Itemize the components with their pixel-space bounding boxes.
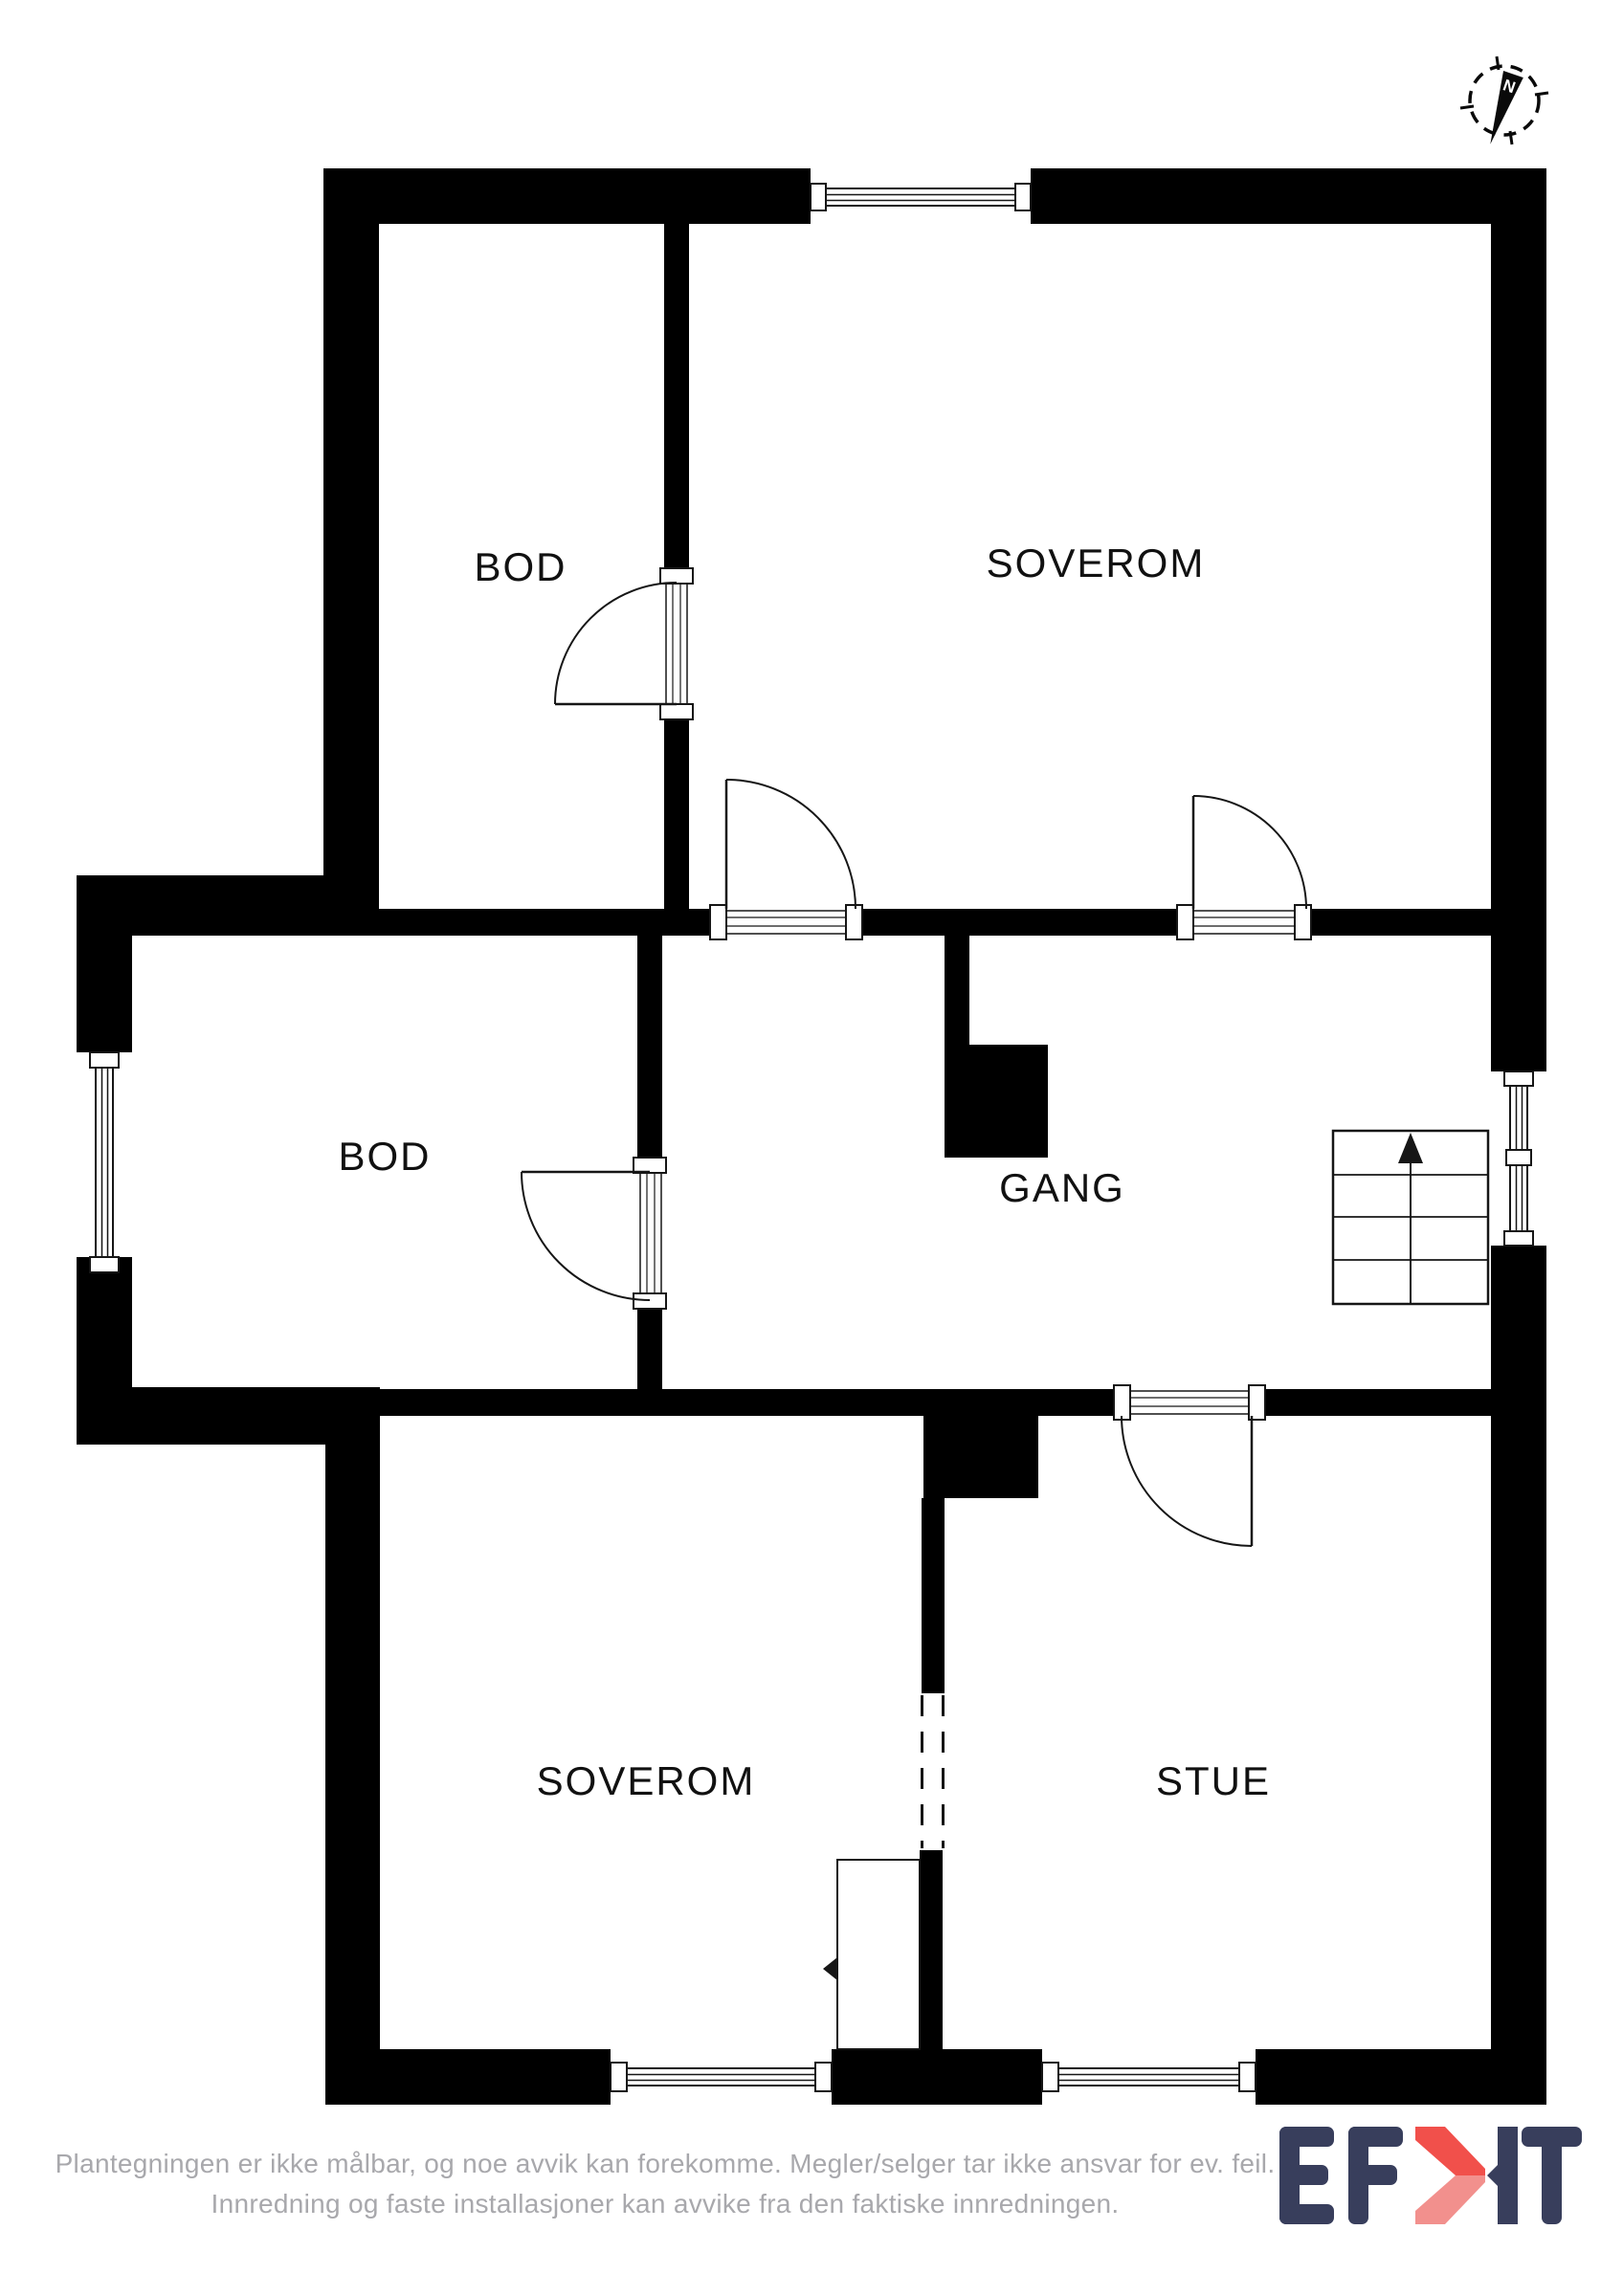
wall-left-upper (323, 168, 379, 936)
door-bod2-arc (522, 1172, 650, 1300)
logo-letter-k-bar (1487, 2127, 1518, 2224)
logo-letter-f (1348, 2165, 1397, 2185)
floorplan-svg: NBODSOVEROMBODGANGSOVEROMSTUE (0, 0, 1623, 2296)
door-bod1-arc (555, 583, 677, 704)
window-bottom2-cap-left (1042, 2063, 1058, 2091)
door-bod2-threshold (640, 1172, 661, 1294)
door-soverom1-left-arc (726, 780, 856, 909)
wall-gang-top-2 (862, 909, 1177, 936)
disclaimer-line-1: Plantegningen er ikke målbar, og noe avv… (0, 2149, 1330, 2179)
window-bottom2-glass (1058, 2068, 1239, 2086)
wall-right-upper (1491, 168, 1546, 1071)
wall-left-mid-upper (77, 875, 132, 1052)
wall-gang-bottom-1 (380, 1389, 1114, 1416)
wall-bottom-3 (1256, 2049, 1546, 2105)
door-soverom1-right-threshold (1193, 911, 1295, 934)
window-top-cap-left (811, 184, 826, 210)
window-left-glass (96, 1068, 113, 1257)
chimney (945, 1045, 1048, 1158)
disclaimer-line-2: Innredning og faste installasjoner kan a… (0, 2189, 1330, 2219)
fixture-box (837, 1860, 920, 2049)
floorplan-page: NBODSOVEROMBODGANGSOVEROMSTUE Plantegnin… (0, 0, 1623, 2296)
logo-letter-t (1542, 2127, 1562, 2224)
door-soverom1-left-cap-left (710, 905, 726, 939)
window-top-cap-right (1015, 184, 1031, 210)
logo-letter-e (1279, 2127, 1334, 2147)
window-top-glass (826, 188, 1015, 206)
room-label-stue: STUE (1156, 1758, 1271, 1803)
window-bottom1-cap-right (815, 2063, 832, 2091)
wall-gang-top-1 (379, 909, 710, 936)
room-label-soverom1: SOVEROM (987, 541, 1206, 585)
window-bottom1-cap-left (611, 2063, 627, 2091)
window-bottom1-glass (627, 2068, 815, 2086)
room-label-soverom2: SOVEROM (537, 1758, 756, 1803)
room-label-bod1: BOD (474, 544, 567, 589)
wall-pier (923, 1416, 1038, 1498)
door-stue-threshold (1130, 1391, 1249, 1414)
door-soverom1-left-threshold (726, 911, 846, 934)
wall-divider-stue-upper (922, 1498, 945, 1693)
wall-right-lower (1491, 1246, 1546, 2105)
wall-divider-bod2-lower (637, 1309, 662, 1389)
door-stue-cap-left (1114, 1385, 1130, 1420)
door-bod1-cap-bottom (660, 704, 693, 719)
wall-gang-top-3 (1311, 909, 1491, 936)
door-soverom1-right-cap-left (1177, 905, 1193, 939)
wall-bottom-1 (325, 2049, 611, 2105)
window-left-cap-top (90, 1052, 119, 1068)
compass-tick (1460, 106, 1474, 108)
compass-tick (1497, 56, 1499, 70)
chimney-stub (945, 936, 969, 1045)
wall-left-lower (325, 1387, 380, 2105)
window-right-cap-bottom (1504, 1231, 1533, 1246)
door-bod1-cap-top (660, 568, 693, 584)
window-left-cap-bottom (90, 1257, 119, 1272)
logo-letter-f (1348, 2127, 1403, 2147)
door-soverom1-right-arc (1193, 796, 1306, 909)
door-soverom1-right-cap-right (1295, 905, 1311, 939)
door-bod1-threshold (666, 584, 687, 704)
room-label-bod2: BOD (338, 1134, 431, 1179)
window-bottom2-cap-right (1239, 2063, 1256, 2091)
wall-divider-bod1-upper (664, 224, 689, 569)
door-bod2-cap-top (634, 1158, 666, 1173)
room-label-gang: GANG (999, 1165, 1125, 1210)
door-stue-cap-right (1249, 1385, 1265, 1420)
wall-step-bottom (77, 1387, 325, 1445)
compass-tick (1535, 93, 1548, 95)
door-stue-arc (1122, 1416, 1252, 1546)
wall-divider-bod1-lower (664, 719, 689, 909)
wall-bottom-2 (832, 2049, 1042, 2105)
window-right-sash-bar (1506, 1150, 1531, 1165)
compass-tick (1510, 131, 1512, 144)
wall-top-left (323, 168, 811, 224)
fixture-tick (823, 1957, 837, 1980)
wall-divider-stue-lower (920, 1850, 943, 2049)
wall-gang-bottom-2 (1265, 1389, 1491, 1416)
window-right-cap-top (1504, 1071, 1533, 1086)
wall-top-right (1031, 168, 1546, 224)
logo-chevron-bottom (1415, 2175, 1485, 2224)
door-soverom1-left-cap-right (846, 905, 862, 939)
logo-chevron-top (1415, 2127, 1485, 2175)
wall-divider-bod2-upper (637, 936, 662, 1158)
